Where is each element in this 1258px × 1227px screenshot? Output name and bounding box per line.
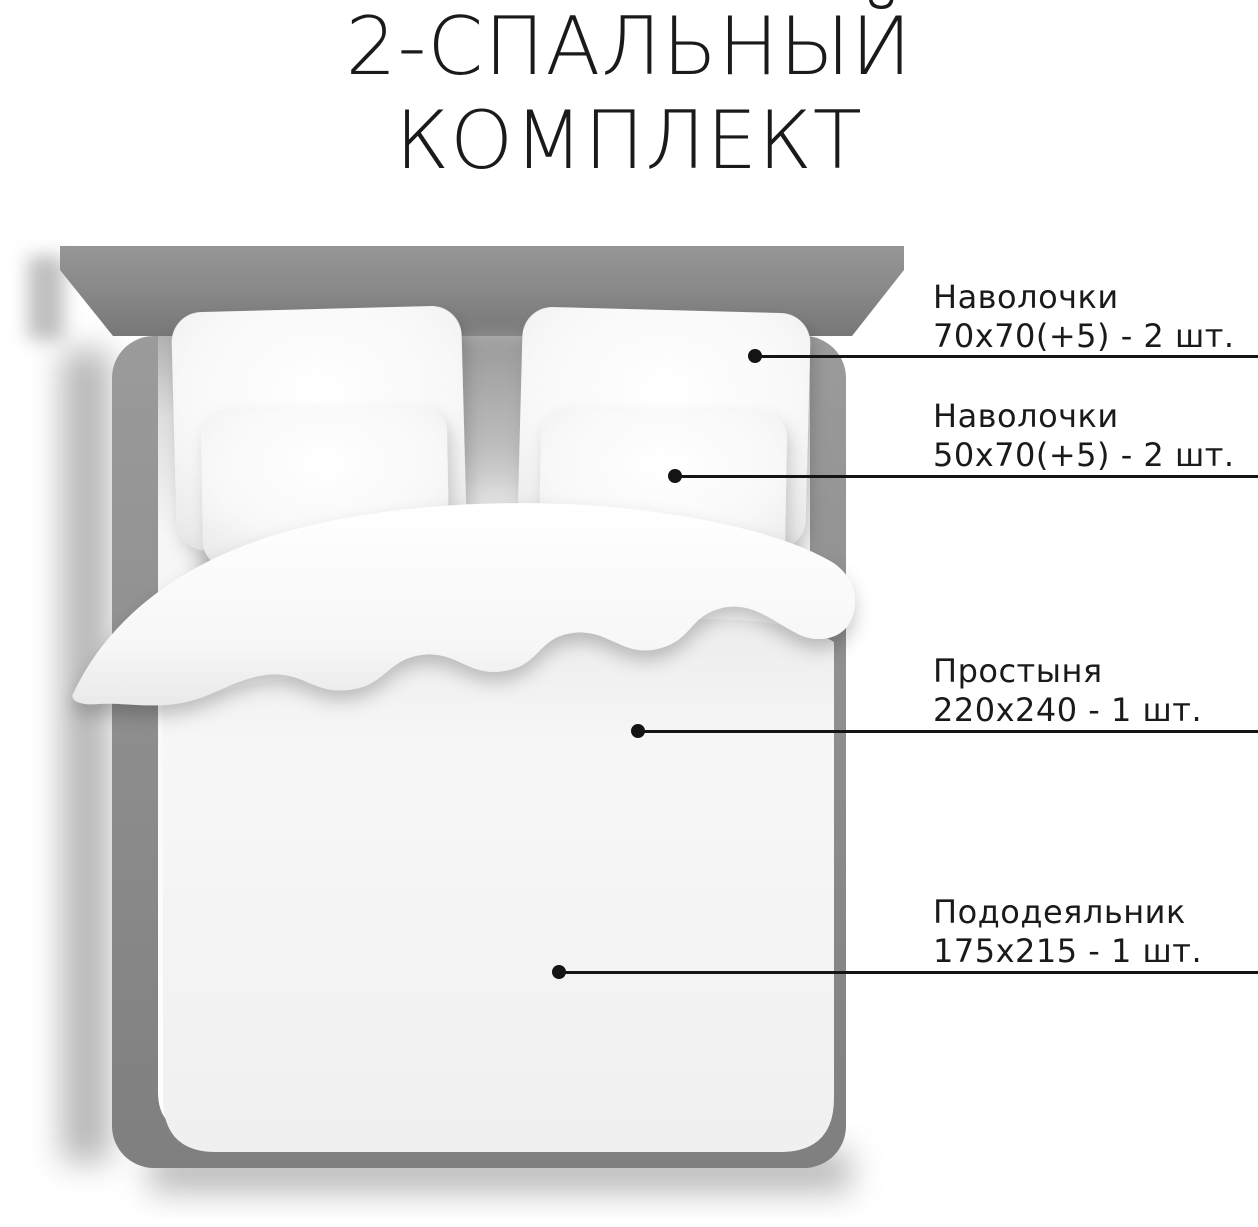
bed-shadow-left: [62, 350, 110, 1162]
callout-line: [556, 971, 1258, 974]
item-name: Простыня: [933, 652, 1258, 691]
item-size: 175х215 - 1 шт.: [933, 932, 1258, 971]
headboard-shadow: [28, 256, 64, 340]
callout-label: Пододеяльник 175х215 - 1 шт.: [933, 893, 1258, 971]
item-name: Наволочки: [933, 397, 1258, 436]
callout-label: Простыня 220х240 - 1 шт.: [933, 652, 1258, 730]
callout-dot-icon: [552, 965, 566, 979]
item-size: 220х240 - 1 шт.: [933, 691, 1258, 730]
callout-label: Наволочки 70х70(+5) - 2 шт.: [933, 278, 1258, 356]
item-name: Наволочки: [933, 278, 1258, 317]
bedding-set-infographic: 2-СПАЛЬНЫЙ КОМПЛЕКТ: [0, 0, 1258, 1227]
callout-label: Наволочки 50х70(+5) - 2 шт.: [933, 397, 1258, 475]
callout-dot-icon: [631, 724, 645, 738]
item-size: 70х70(+5) - 2 шт.: [933, 317, 1258, 356]
callout-dot-icon: [748, 349, 762, 363]
duvet-cover: [163, 619, 834, 1152]
item-name: Пододеяльник: [933, 893, 1258, 932]
item-size: 50х70(+5) - 2 шт.: [933, 436, 1258, 475]
callout-dot-icon: [668, 469, 682, 483]
callout-line: [635, 730, 1258, 733]
bed-illustration: [0, 0, 1258, 1227]
callout-line: [672, 475, 1258, 478]
